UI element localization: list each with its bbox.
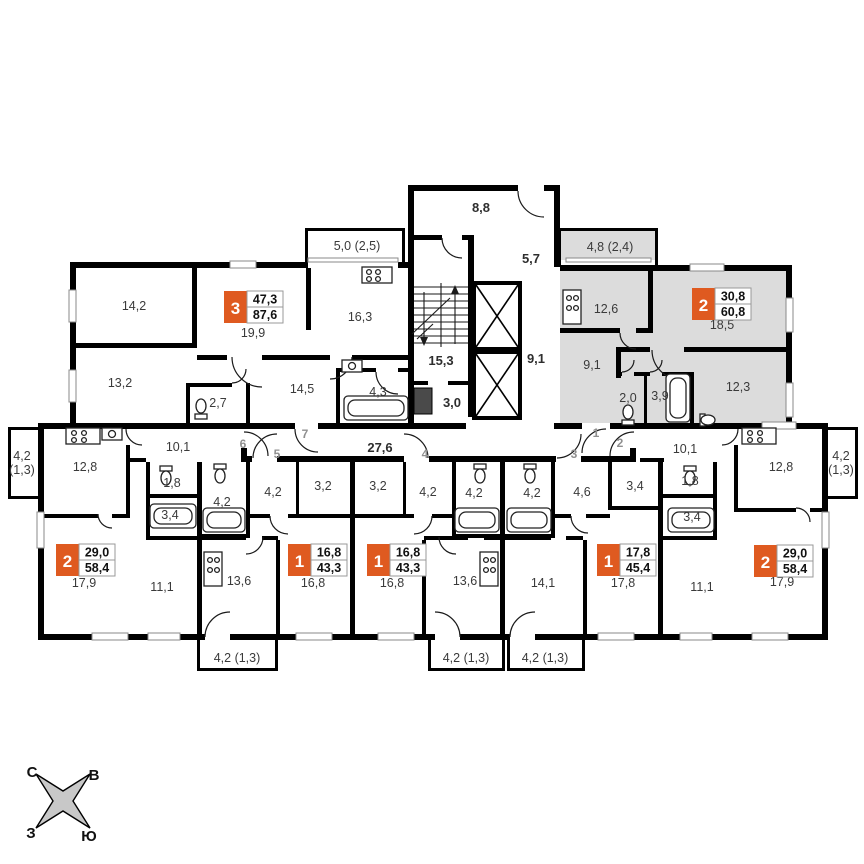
apartment-badge-5[interactable]: 1 16,8 43,3: [288, 544, 347, 576]
compass-north-label: С: [27, 764, 38, 781]
bathtub: [666, 374, 690, 422]
room-area: 16,3: [348, 310, 372, 324]
badge-living-area: 30,8: [721, 290, 745, 304]
floor-plan-drawing: 8,8 5,7 15,3 3,0 9,1 27,6 7 1 6 5 4 3 2 …: [0, 0, 864, 864]
room-area: 4,6: [573, 485, 590, 499]
room-area: 13,2: [108, 376, 132, 390]
compass-star: [36, 774, 90, 828]
balcony-area: (1,3): [9, 463, 35, 477]
apartment-badge-7[interactable]: 3 47,3 87,6: [224, 291, 283, 323]
badge-total-area: 43,3: [317, 561, 341, 575]
badge-living-area: 16,8: [396, 546, 420, 560]
elevator-shafts: [474, 283, 520, 418]
corridor-area: 27,6: [367, 440, 392, 455]
room-area: 11,1: [690, 580, 713, 594]
apartment-badge-1[interactable]: 2 30,8 60,8: [692, 288, 751, 320]
badge-living-area: 29,0: [783, 547, 807, 561]
bathtub: [455, 508, 499, 532]
balcony-area: 4,2 (1,3): [214, 651, 261, 665]
badge-rooms-count: 2: [761, 553, 770, 572]
door-number-3: 3: [571, 447, 578, 461]
stove: [563, 290, 581, 324]
badge-total-area: 43,3: [396, 561, 420, 575]
room-area: 17,8: [611, 576, 635, 590]
room-area: 1,8: [163, 476, 180, 490]
room-area: 1,8: [681, 474, 698, 488]
badge-rooms-count: 1: [295, 552, 304, 571]
badge-total-area: 58,4: [85, 561, 109, 575]
door-number-1: 1: [593, 426, 600, 440]
room-area: 17,9: [72, 576, 96, 590]
balcony-area: (1,3): [828, 463, 854, 477]
balcony-area: 4,2: [13, 449, 30, 463]
toilet: [214, 464, 226, 483]
room-area: 11,1: [150, 580, 173, 594]
sink: [102, 428, 122, 440]
balcony-area: 5,0 (2,5): [334, 239, 381, 253]
compass-west-label: З: [26, 825, 35, 842]
badge-rooms-count: 1: [604, 552, 613, 571]
compass-east-label: В: [89, 767, 100, 784]
door-number-2: 2: [617, 436, 624, 450]
room-area: 12,6: [594, 302, 618, 316]
room-area: 12,8: [73, 460, 97, 474]
badge-total-area: 60,8: [721, 305, 745, 319]
toilet: [524, 464, 536, 483]
badge-living-area: 16,8: [317, 546, 341, 560]
room-area: 3,2: [369, 479, 386, 493]
stove: [66, 428, 100, 444]
room-area: 13,6: [453, 574, 477, 588]
room-area: 9,1: [583, 358, 600, 372]
toilet: [195, 399, 207, 419]
door-number-7: 7: [302, 427, 309, 441]
room-area: 3,2: [314, 479, 331, 493]
balcony-area: 4,8 (2,4): [587, 240, 634, 254]
stove: [480, 552, 498, 586]
room-area: 14,5: [290, 382, 314, 396]
stove: [742, 428, 776, 444]
room-area: 4,3: [369, 385, 386, 399]
room-area: 13,6: [227, 574, 251, 588]
room-area: 10,1: [166, 440, 190, 454]
room-area: 12,8: [769, 460, 793, 474]
toilet: [700, 414, 715, 426]
room-area: 16,8: [301, 576, 325, 590]
apartment-badge-2[interactable]: 2 29,0 58,4: [754, 545, 813, 577]
room-area: 4,2: [264, 485, 281, 499]
floor-plan: 8,8 5,7 15,3 3,0 9,1 27,6 7 1 6 5 4 3 2 …: [0, 0, 864, 864]
stove: [362, 267, 392, 283]
badge-rooms-count: 3: [231, 299, 240, 318]
lobby-area: 3,0: [443, 395, 461, 410]
toilet: [622, 405, 634, 425]
room-area: 3,9: [651, 389, 668, 403]
badge-rooms-count: 1: [374, 552, 383, 571]
door-number-5: 5: [274, 447, 281, 461]
badge-total-area: 87,6: [253, 308, 277, 322]
room-area: 14,2: [122, 299, 146, 313]
room-area: 4,2: [419, 485, 436, 499]
badge-living-area: 29,0: [85, 546, 109, 560]
room-area: 4,2: [523, 486, 540, 500]
room-area: 3,4: [161, 508, 178, 522]
apartment-badge-6[interactable]: 2 29,0 58,4: [56, 544, 115, 576]
balcony-area: 4,2 (1,3): [522, 651, 569, 665]
badge-total-area: 58,4: [783, 562, 807, 576]
door-number-6: 6: [240, 437, 247, 451]
toilet: [474, 464, 486, 483]
stove: [204, 552, 222, 586]
upper-hall-area: 5,7: [522, 251, 540, 266]
balcony-area: 4,2: [832, 449, 849, 463]
bathtub: [203, 508, 245, 532]
room-area: 10,1: [673, 442, 697, 456]
room-area: 2,7: [209, 396, 226, 410]
elevator-hall-area: 9,1: [527, 351, 545, 366]
door-number-4: 4: [422, 447, 429, 461]
bathtub: [344, 396, 408, 420]
room-area: 4,2: [465, 486, 482, 500]
badge-living-area: 17,8: [626, 546, 650, 560]
compass-rose: С В З Ю: [26, 764, 99, 845]
stair-landing-area: 15,3: [428, 353, 453, 368]
apartment-badge-3[interactable]: 1 17,8 45,4: [597, 544, 656, 576]
bathtub: [507, 508, 551, 532]
sink: [342, 360, 362, 372]
badge-rooms-count: 2: [63, 552, 72, 571]
room-area: 14,1: [531, 576, 555, 590]
staircase: [412, 283, 468, 347]
room-area: 12,3: [726, 380, 750, 394]
room-area: 19,9: [241, 326, 265, 340]
badge-rooms-count: 2: [699, 296, 708, 315]
badge-living-area: 47,3: [253, 293, 277, 307]
room-area: 3,4: [683, 510, 700, 524]
room-area: 3,4: [626, 479, 643, 493]
room-area: 2,0: [619, 391, 636, 405]
compass-south-label: Ю: [81, 828, 96, 845]
badge-total-area: 45,4: [626, 561, 650, 575]
vestibule-area: 8,8: [472, 200, 490, 215]
balcony-area: 4,2 (1,3): [443, 651, 490, 665]
room-area: 4,2: [213, 495, 230, 509]
apartment-badge-4[interactable]: 1 16,8 43,3: [367, 544, 426, 576]
room-area: 16,8: [380, 576, 404, 590]
